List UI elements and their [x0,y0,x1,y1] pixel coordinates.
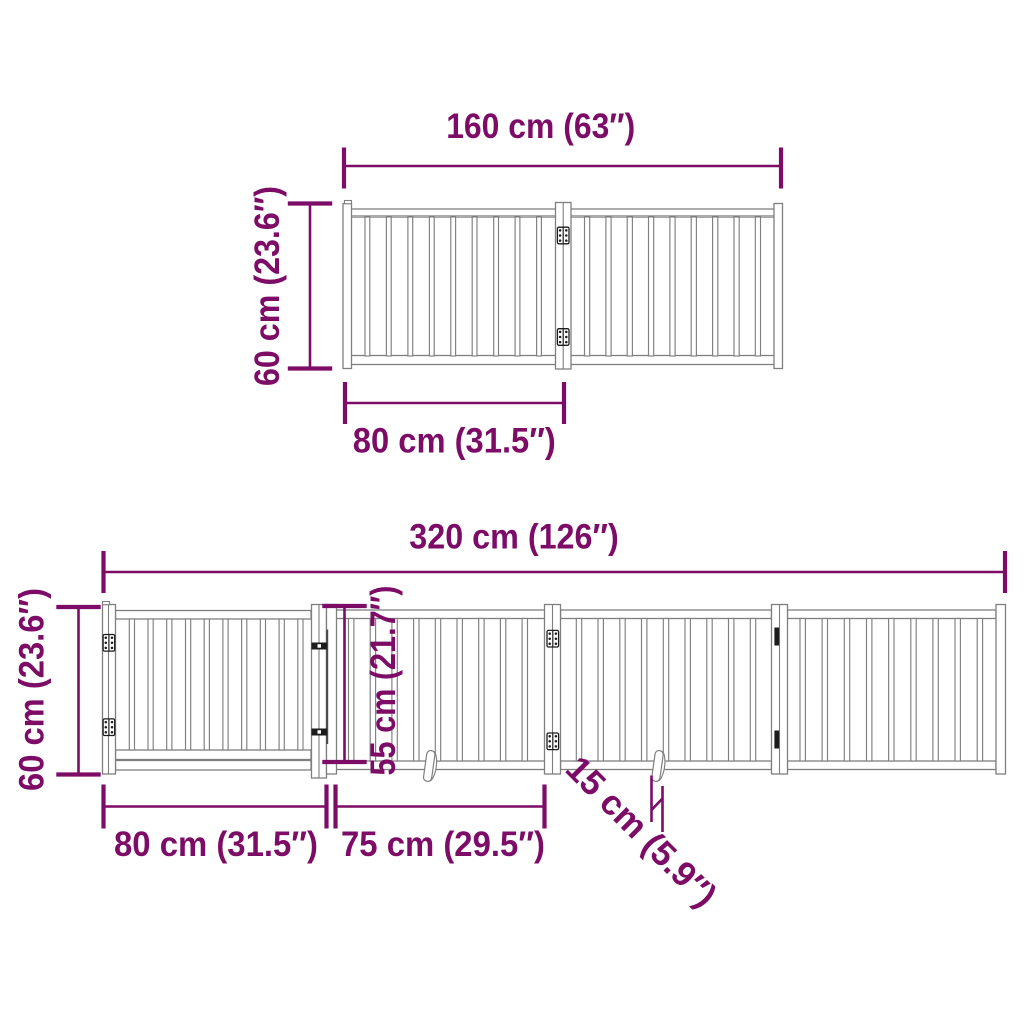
svg-text:60 cm (23.6″): 60 cm (23.6″) [248,186,287,386]
svg-text:60 cm (23.6″): 60 cm (23.6″) [13,588,52,791]
svg-text:75 cm (29.5″): 75 cm (29.5″) [341,825,545,864]
svg-text:55 cm (21.7″): 55 cm (21.7″) [364,586,403,776]
svg-text:80 cm (31.5″): 80 cm (31.5″) [114,825,318,864]
svg-text:320 cm (126″): 320 cm (126″) [409,518,619,557]
svg-text:160 cm (63″): 160 cm (63″) [446,107,635,146]
svg-text:80 cm (31.5″): 80 cm (31.5″) [353,422,556,461]
